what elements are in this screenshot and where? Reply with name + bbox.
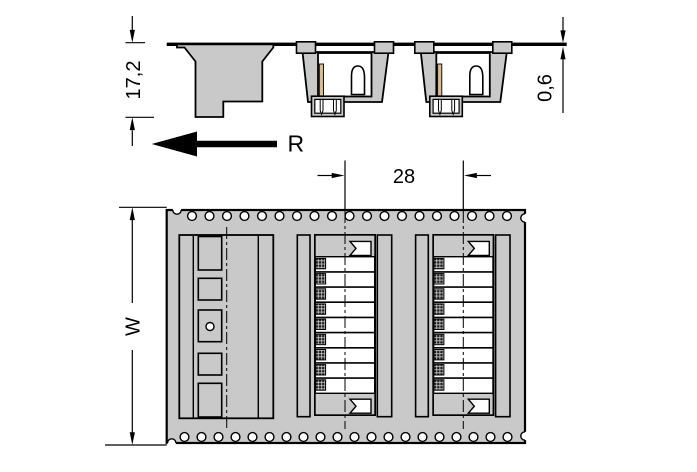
sprocket-hole — [205, 212, 214, 221]
sprocket-hole — [452, 433, 461, 442]
lever-cavity — [470, 66, 483, 95]
sprocket-hole — [485, 212, 494, 221]
sprocket-hole — [398, 212, 407, 221]
contact-pad — [434, 350, 444, 360]
sprocket-hole — [275, 212, 284, 221]
contact-pad — [434, 380, 444, 390]
plan-view: 28 W — [105, 161, 529, 448]
pocket-index-hole — [206, 323, 214, 331]
sprocket-hole — [265, 433, 274, 442]
arrowhead-down-icon — [560, 30, 565, 43]
contact-strip — [319, 64, 323, 96]
contact-pad — [434, 304, 444, 314]
drawing-svg: 17,2 0,6 R — [0, 0, 697, 472]
sprocket-hole — [435, 433, 444, 442]
sprocket-hole — [316, 433, 325, 442]
contact-pad — [316, 258, 326, 268]
arrowhead-down-icon — [130, 30, 135, 43]
contact-pad — [434, 289, 444, 299]
sprocket-hole — [333, 433, 342, 442]
connector-cross-section — [297, 42, 394, 117]
sprocket-hole — [384, 433, 393, 442]
sprocket-hole — [486, 433, 495, 442]
sprocket-hole — [418, 433, 427, 442]
arrowhead-left-icon — [464, 173, 477, 178]
sprocket-hole — [345, 212, 354, 221]
technical-drawing: 17,2 0,6 R — [0, 0, 697, 472]
contact-pad — [316, 334, 326, 344]
dim-thickness-label: 0,6 — [535, 74, 557, 102]
contact-pad — [316, 274, 326, 284]
arrowhead-down-icon — [130, 432, 135, 445]
solder-pin — [439, 99, 442, 114]
sprocket-hole — [380, 212, 389, 221]
contact-pad — [434, 365, 444, 375]
side-view: 17,2 0,6 R — [123, 16, 567, 157]
sprocket-hole — [293, 212, 302, 221]
sprocket-hole — [248, 433, 257, 442]
sprocket-hole — [401, 433, 410, 442]
empty-pocket-profile — [177, 44, 273, 117]
sprocket-hole — [258, 212, 267, 221]
sprocket-hole — [367, 433, 376, 442]
contact-pad — [316, 350, 326, 360]
sprocket-hole — [180, 433, 189, 442]
contact-strip — [438, 64, 442, 96]
sprocket-hole — [503, 433, 512, 442]
contact-pad — [434, 258, 444, 268]
sprocket-hole — [450, 212, 459, 221]
contact-pad — [434, 274, 444, 284]
arrowhead-up-icon — [130, 117, 135, 130]
dim-pitch-label: 28 — [393, 166, 415, 188]
reel-direction-label: R — [288, 131, 305, 157]
contact-pad — [316, 380, 326, 390]
contact-pad — [316, 289, 326, 299]
sprocket-hole — [214, 433, 223, 442]
sprocket-hole — [468, 212, 477, 221]
dim-height-label: 17,2 — [123, 61, 145, 100]
sprocket-hole — [231, 433, 240, 442]
sprocket-hole — [282, 433, 291, 442]
sprocket-hole — [363, 212, 372, 221]
dim-width-label: W — [123, 317, 145, 336]
sprocket-hole — [469, 433, 478, 442]
sprocket-hole — [299, 433, 308, 442]
sprocket-hole — [415, 212, 424, 221]
lever-cavity — [352, 66, 365, 95]
dim-thickness — [560, 17, 565, 113]
reel-direction-arrow-icon — [152, 132, 277, 157]
arrowhead-right-icon — [332, 173, 345, 178]
arrowhead-up-icon — [130, 207, 135, 220]
sprocket-hole — [503, 212, 512, 221]
contact-pad — [316, 319, 326, 329]
solder-pin — [320, 99, 323, 114]
sprocket-hole — [240, 212, 249, 221]
contact-pad — [434, 319, 444, 329]
contact-pad — [316, 304, 326, 314]
connector-cross-section — [415, 42, 512, 117]
solder-pin — [452, 99, 455, 114]
arrowhead-up-icon — [560, 47, 565, 60]
sprocket-hole — [197, 433, 206, 442]
side-connectors — [297, 42, 512, 117]
solder-pin — [334, 99, 337, 114]
contact-pad — [434, 334, 444, 344]
contact-pad — [316, 365, 326, 375]
sprocket-hole — [310, 212, 319, 221]
sprocket-hole — [350, 433, 359, 442]
sprocket-hole — [433, 212, 442, 221]
sprocket-hole — [188, 212, 197, 221]
sprocket-hole — [328, 212, 337, 221]
sprocket-hole — [223, 212, 232, 221]
